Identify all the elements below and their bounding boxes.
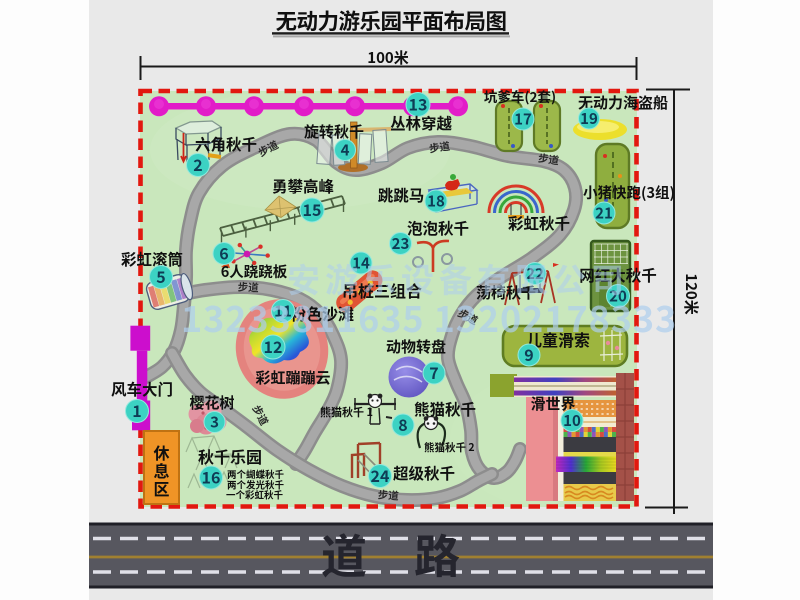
svg-text:6人跷跷板: 6人跷跷板 <box>221 261 288 282</box>
svg-text:超级秋千: 超级秋千 <box>393 462 455 484</box>
svg-text:15: 15 <box>303 197 322 221</box>
svg-text:熊猫秋千 2: 熊猫秋千 2 <box>424 440 475 455</box>
svg-text:一个彩虹秋千: 一个彩虹秋千 <box>226 488 284 502</box>
svg-text:熊猫秋千 1: 熊猫秋千 1 <box>320 404 373 420</box>
svg-text:2: 2 <box>193 152 202 176</box>
svg-text:24: 24 <box>371 463 390 487</box>
svg-text:道: 道 <box>321 521 367 587</box>
svg-text:步道: 步道 <box>537 151 560 169</box>
svg-text:4: 4 <box>341 139 350 160</box>
svg-text:坑爹车(2套): 坑爹车(2套) <box>484 86 556 106</box>
svg-text:13233811635 13202178333: 13233811635 13202178333 <box>181 291 677 343</box>
svg-text:勇攀高峰: 勇攀高峰 <box>272 175 335 197</box>
svg-text:跳跳马: 跳跳马 <box>378 184 425 206</box>
svg-text:彩虹滚筒: 彩虹滚筒 <box>121 248 183 270</box>
svg-text:丛林穿越: 丛林穿越 <box>390 112 453 134</box>
svg-text:23: 23 <box>392 233 410 254</box>
svg-text:六角秋千: 六角秋千 <box>195 133 257 155</box>
svg-text:16: 16 <box>202 464 221 488</box>
svg-text:路: 路 <box>414 521 460 587</box>
svg-text:18: 18 <box>427 190 445 211</box>
svg-text:步道: 步道 <box>428 139 451 157</box>
svg-text:樱花树: 樱花树 <box>189 392 234 413</box>
svg-text:区: 区 <box>153 476 169 500</box>
svg-text:熊猫秋千: 熊猫秋千 <box>414 398 476 420</box>
svg-text:3: 3 <box>210 411 219 432</box>
svg-text:风车大门: 风车大门 <box>111 378 173 400</box>
svg-text:1: 1 <box>132 398 141 422</box>
svg-text:5: 5 <box>156 264 165 288</box>
svg-text:彩虹蹦蹦云: 彩虹蹦蹦云 <box>255 367 330 388</box>
svg-text:泡泡秋千: 泡泡秋千 <box>407 217 469 239</box>
svg-text:6: 6 <box>219 240 228 264</box>
svg-text:旋转秋千: 旋转秋千 <box>304 121 364 142</box>
svg-text:步道: 步道 <box>377 487 399 503</box>
svg-text:7: 7 <box>429 360 438 384</box>
svg-text:小猪快跑(3组): 小猪快跑(3组) <box>583 182 675 203</box>
svg-text:10: 10 <box>563 410 581 431</box>
svg-text:彩虹秋千: 彩虹秋千 <box>508 212 570 234</box>
svg-text:8: 8 <box>398 412 407 436</box>
svg-text:17: 17 <box>514 108 532 129</box>
svg-text:无动力游乐园平面布局图: 无动力游乐园平面布局图 <box>275 5 506 36</box>
svg-text:120米: 120米 <box>681 273 702 315</box>
svg-text:21: 21 <box>595 202 613 223</box>
svg-text:19: 19 <box>580 108 598 129</box>
svg-text:9: 9 <box>524 342 533 366</box>
svg-text:100米: 100米 <box>367 47 409 68</box>
